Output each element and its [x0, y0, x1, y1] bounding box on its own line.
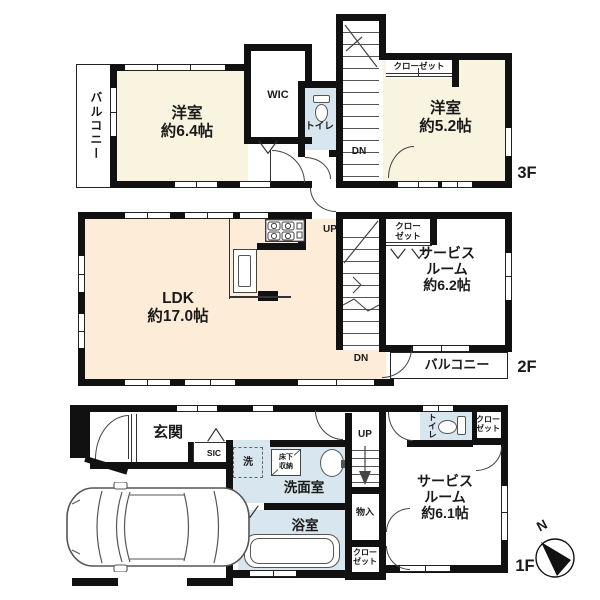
storage-text: 物入 — [356, 507, 374, 517]
service-room-label-2f: サービスルーム約6.2帖 — [392, 240, 502, 298]
wall — [379, 53, 512, 60]
parking-line — [72, 578, 118, 586]
window-tick — [197, 405, 198, 412]
faucet-icon — [341, 460, 345, 468]
toilet-label-1f: トイレ — [425, 412, 438, 440]
window-tick — [501, 512, 508, 513]
stairs-arrow-1f — [352, 443, 379, 487]
closet-1f-lower-2: ゼット — [353, 557, 377, 566]
bathroom-text: 浴室 — [292, 518, 319, 534]
window-tick — [425, 565, 426, 572]
washroom-label: 洗面室 — [266, 480, 342, 496]
floor-label-1f: 1F — [509, 556, 541, 576]
stairs-dn-label-2f: DN — [344, 353, 378, 365]
wall — [345, 487, 386, 494]
closet-label-2f: クローゼット — [386, 221, 430, 242]
wall-gap — [305, 150, 329, 157]
up-text-2f: UP — [323, 224, 337, 236]
parking-line — [187, 578, 233, 586]
ldk-size: 約17.0帖 — [147, 308, 208, 326]
thin-line — [193, 442, 194, 462]
sic-label: SIC — [196, 448, 232, 460]
car-icon — [64, 482, 252, 572]
wall — [78, 212, 85, 386]
balcony-label-2f: バルコニー — [408, 354, 506, 377]
wall — [336, 14, 343, 188]
window — [125, 64, 225, 71]
kitchen-sink-icon — [238, 255, 251, 287]
underfloor-text-2: 収納 — [278, 463, 294, 471]
wic-text: WIC — [267, 89, 288, 102]
wall — [472, 438, 508, 445]
window-tick — [418, 181, 419, 188]
toilet-text-3f: トイレ — [305, 122, 334, 133]
underfloor-text-1: 床下 — [278, 454, 294, 462]
window-tick — [157, 64, 158, 71]
stairs-up-label-1f: UP — [350, 429, 380, 441]
dn-text-3f: DN — [352, 146, 366, 158]
window-tick — [196, 181, 197, 188]
door-arc — [310, 188, 336, 212]
window-tick — [336, 379, 337, 386]
service-1f-1: サービス — [417, 473, 473, 489]
door-arc — [95, 415, 129, 459]
window-tick — [505, 276, 512, 277]
wall — [407, 440, 473, 447]
service-2f-2: ルーム — [426, 261, 468, 277]
sic-text: SIC — [207, 449, 221, 459]
closet-label-3f: クローゼット — [386, 60, 452, 73]
bedroom-64-size: 約6.4帖 — [161, 123, 214, 141]
door-arc — [388, 412, 413, 441]
up-text-1f: UP — [358, 429, 372, 441]
window-tick — [147, 212, 148, 219]
floor-text-3f: 3F — [517, 164, 536, 183]
stairs-arrow-2f — [343, 219, 379, 350]
ldk-label: LDK約17.0帖 — [96, 287, 260, 329]
closet-1f-upper-1: クロー — [476, 415, 500, 424]
bedroom-64-label: 洋室約6.4帖 — [123, 103, 251, 143]
toilet-tank-icon-3f — [313, 95, 330, 103]
window-tick — [78, 331, 85, 332]
door-arc — [315, 410, 343, 440]
service-1f-2: ルーム — [424, 489, 466, 505]
closet-1f-upper-2: ゼット — [476, 424, 500, 433]
wall — [379, 219, 386, 350]
window — [240, 181, 270, 188]
stairs-up-label-2f: UP — [318, 224, 342, 236]
window-tick — [441, 345, 442, 352]
closet-1f-lower-1: クロー — [353, 548, 377, 557]
bedroom-52-label: 洋室約5.2帖 — [386, 98, 505, 138]
underfloor-storage-label: 床下収納 — [271, 449, 301, 476]
laundry-label: 洗 — [233, 447, 263, 478]
floor-label-3f: 3F — [511, 163, 543, 183]
balcony-text-3f: バルコニー — [88, 91, 102, 161]
bathtub-inner — [250, 538, 334, 564]
bathroom-label: 浴室 — [273, 517, 337, 534]
closet-text-3f: クローゼット — [393, 62, 444, 72]
wall-gap — [312, 212, 336, 219]
stairs-dn-label-3f: DN — [342, 146, 376, 158]
closet-label-1f-upper: クローゼット — [473, 413, 503, 435]
window-tick — [190, 64, 191, 71]
wall — [336, 219, 343, 350]
window-tick — [438, 405, 439, 412]
window — [185, 212, 233, 219]
window — [253, 405, 273, 412]
service-room-label-1f: サービスルーム約6.1帖 — [390, 468, 500, 526]
wall — [70, 405, 90, 458]
wall — [257, 243, 306, 250]
bedroom-52-name: 洋室 — [430, 100, 461, 118]
wall-gap — [312, 181, 336, 188]
wic-label: WIC — [251, 87, 305, 103]
balcony-label-3f: バルコニー — [76, 64, 114, 188]
service-2f-1: サービス — [419, 245, 475, 261]
toilet-text-1f: トイレ — [427, 413, 437, 439]
window — [240, 212, 268, 219]
washroom-text: 洗面室 — [284, 480, 325, 496]
bedroom-64-name: 洋室 — [171, 105, 202, 123]
balcony-text-2f: バルコニー — [425, 358, 490, 373]
window-tick — [273, 570, 274, 577]
service-2f-size: 約6.2帖 — [423, 277, 470, 293]
service-1f-size: 約6.1帖 — [421, 505, 468, 521]
hanger-mark-icon — [258, 140, 278, 154]
wall — [244, 44, 312, 51]
floor-label-2f: 2F — [511, 357, 543, 377]
window-tick — [457, 181, 458, 188]
entrance-label: 玄関 — [138, 423, 198, 443]
window-tick — [210, 379, 211, 386]
bedroom-52-size: 約5.2帖 — [419, 118, 472, 136]
floor-plan: バルコニー 洋室約6.4帖 WIC トイレ DN クローゼット 洋室約5.2帖 … — [0, 0, 600, 600]
laundry-text: 洗 — [243, 457, 253, 469]
toilet-tank-icon-1f — [457, 416, 466, 435]
hanger-mark-icon — [207, 428, 225, 442]
wall — [270, 440, 345, 447]
floor-text-1f: 1F — [515, 557, 534, 576]
thin-line — [195, 442, 226, 443]
door-arc — [305, 157, 331, 179]
ldk-name: LDK — [162, 290, 194, 308]
toilet-bowl-icon-1f — [438, 420, 457, 434]
window — [505, 128, 512, 156]
window-tick — [78, 274, 85, 275]
entrance-text: 玄関 — [153, 424, 183, 441]
thin-line — [131, 414, 132, 462]
dn-text-2f: DN — [354, 353, 368, 365]
wall — [452, 53, 459, 87]
window-tick — [147, 379, 148, 386]
toilet-label-3f: トイレ — [303, 121, 336, 134]
stove-icon — [265, 219, 305, 242]
window-tick — [207, 212, 208, 219]
closet-label-1f-lower: クローゼット — [346, 546, 384, 568]
floor-text-2f: 2F — [517, 358, 536, 377]
storage-label: 物入 — [347, 506, 383, 518]
